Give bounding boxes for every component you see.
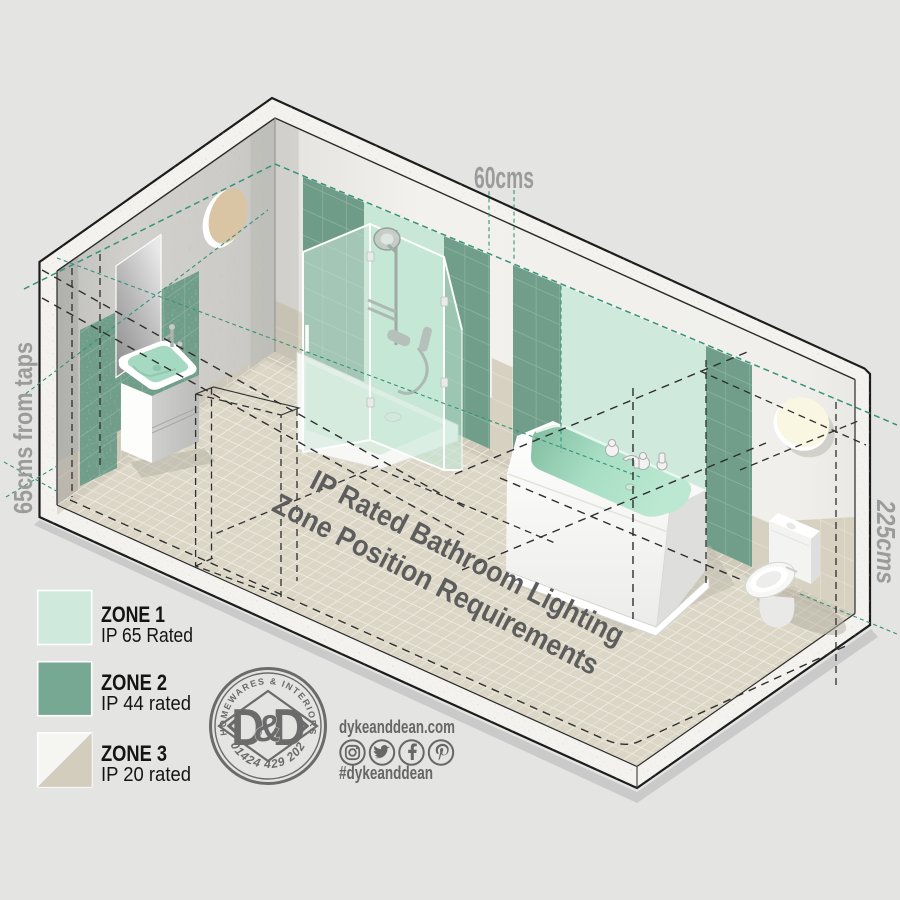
svg-text:&: & (254, 708, 281, 750)
svg-text:dykeanddean.com: dykeanddean.com (339, 717, 455, 737)
svg-text:225cms: 225cms (871, 499, 900, 584)
svg-text:60cms: 60cms (474, 160, 534, 195)
svg-text:#dykeanddean: #dykeanddean (339, 763, 433, 783)
svg-text:IP 44 rated: IP 44 rated (101, 692, 191, 715)
svg-text:IP 65 Rated: IP 65 Rated (101, 624, 193, 647)
svg-text:65cms from taps: 65cms from taps (8, 342, 38, 514)
svg-text:IP 20 rated: IP 20 rated (101, 763, 191, 786)
